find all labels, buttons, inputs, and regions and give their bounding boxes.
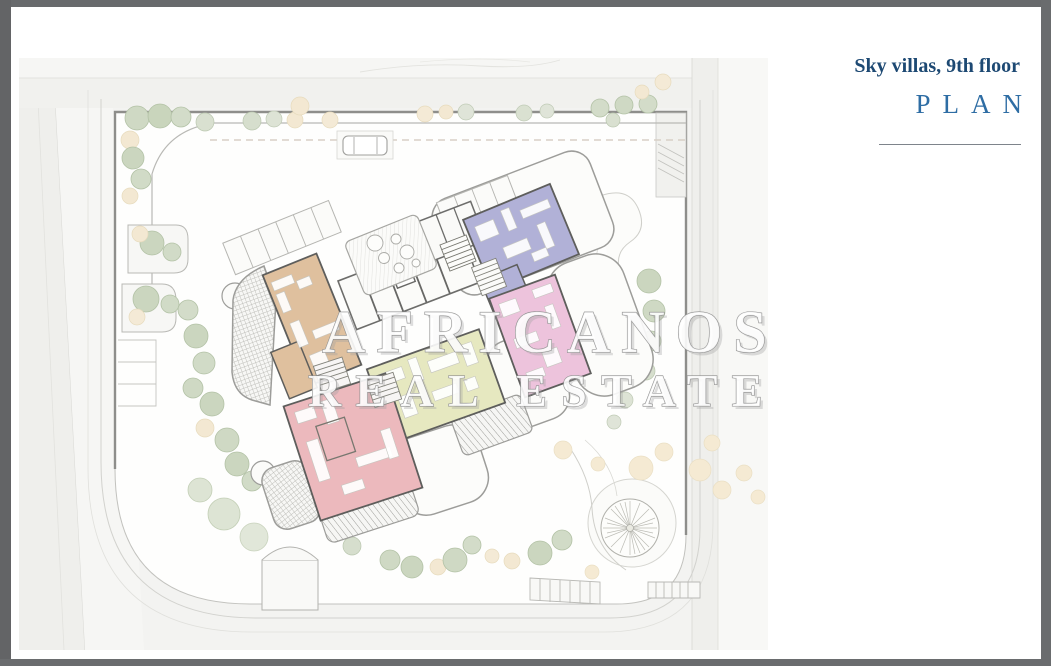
svg-text:REAL ESTATE: REAL ESTATE [308,365,777,416]
svg-text:AFRICANOS: AFRICANOS [322,299,778,365]
